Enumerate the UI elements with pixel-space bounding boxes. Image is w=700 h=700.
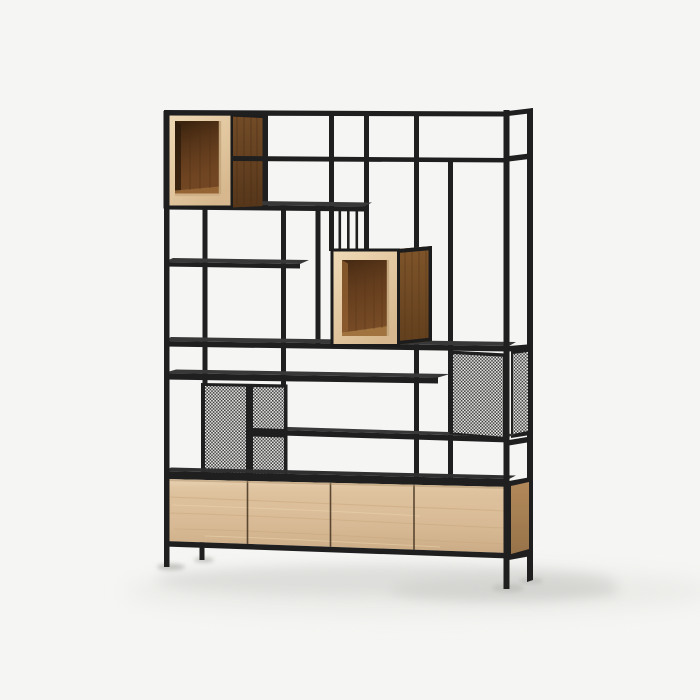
box1-interior-shading xyxy=(175,121,220,194)
box2-side-shading xyxy=(398,246,432,345)
mesh-panel-left-a xyxy=(205,386,246,474)
cabinet-base xyxy=(164,468,516,559)
cabinet-side-shading xyxy=(511,482,529,554)
box2-side-panel xyxy=(398,246,432,345)
side-mesh-panel xyxy=(513,352,528,434)
slat xyxy=(356,210,359,250)
upright-slat-right xyxy=(364,115,369,249)
shelving-unit-render xyxy=(0,0,700,700)
cabinet-doors xyxy=(164,479,509,553)
box1-interior xyxy=(175,121,220,194)
cabinet-side-panel xyxy=(511,482,529,554)
mesh-panel-left-b-bottom xyxy=(253,437,284,475)
box2-side-back-edge xyxy=(429,246,433,342)
mesh-panel-left-b-top xyxy=(253,387,284,429)
upright-slat-left xyxy=(329,115,334,251)
display-box-middle xyxy=(331,246,433,347)
box2-interior xyxy=(342,260,388,336)
slat xyxy=(347,210,350,250)
front-right-post xyxy=(504,110,510,589)
box2-interior-left-wall xyxy=(342,260,348,336)
shadow-leg-front-left xyxy=(157,564,185,571)
slat xyxy=(339,210,342,250)
box1-interior-left-wall xyxy=(175,121,181,194)
front-left-post xyxy=(164,110,170,567)
product-photo xyxy=(0,0,700,700)
mesh-panel-right xyxy=(453,354,503,437)
upright-mid-short xyxy=(316,205,321,347)
